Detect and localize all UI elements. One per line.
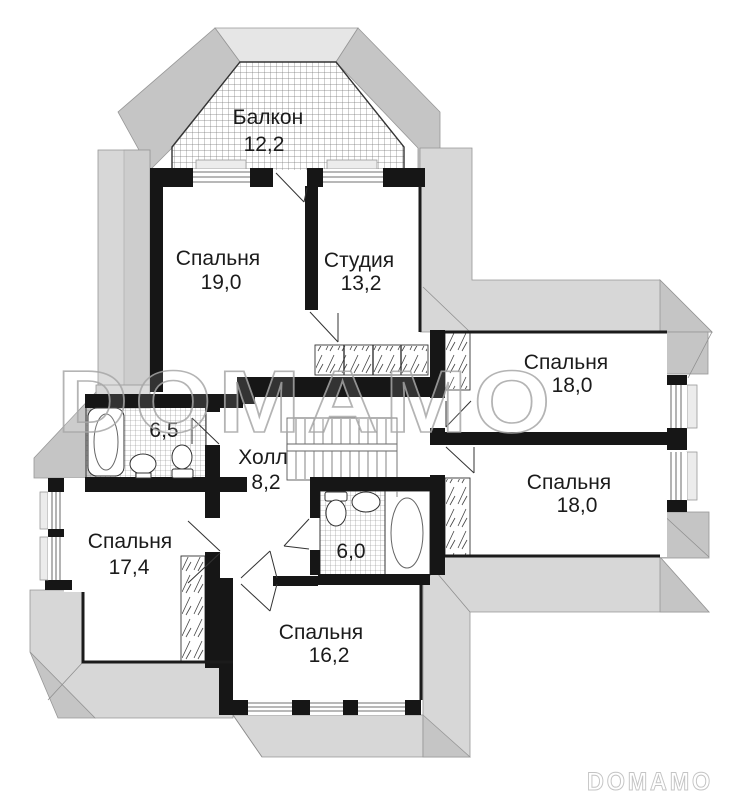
wall-segment	[667, 500, 687, 512]
room-label-studio: Студия	[324, 249, 394, 272]
watermark-footer: DOMAMO	[587, 768, 713, 796]
wall-segment	[307, 168, 323, 187]
window-sill	[687, 385, 697, 428]
window-bedroom-18-lower	[667, 452, 687, 500]
wall-segment	[85, 477, 247, 492]
wall-segment	[310, 477, 445, 491]
room-label-bedroom-17: Спальня	[88, 530, 172, 553]
window-sill	[196, 160, 246, 169]
floor-plan-page: Балкон 12,2 Спальня 19,0 Студия 13,2 Спа…	[0, 0, 736, 800]
wall-segment	[310, 550, 320, 575]
room-area-bedroom-18-upper: 18,0	[552, 374, 593, 397]
room-area-bedroom-16: 16,2	[309, 644, 350, 667]
wall-segment	[310, 491, 320, 518]
window-sill	[40, 537, 48, 580]
wardrobe-hatch	[182, 557, 204, 661]
window-sill	[687, 452, 697, 500]
room-label-bedroom-16: Спальня	[279, 621, 363, 644]
watermark-center: DOMAMO	[57, 352, 557, 451]
room-area-studio: 13,2	[341, 272, 382, 295]
room-label-bedroom-19: Спальня	[176, 247, 260, 270]
wall-segment	[250, 168, 273, 187]
wall-segment	[48, 529, 64, 537]
wall-segment	[305, 186, 318, 310]
sink-65	[130, 454, 156, 474]
room-area-balcony: 12,2	[244, 133, 285, 156]
floor-plan-image: Балкон 12,2 Спальня 19,0 Студия 13,2 Спа…	[0, 0, 736, 800]
wall-segment	[219, 700, 248, 715]
wall-segment	[205, 492, 220, 518]
window-sill	[327, 160, 377, 169]
wall-segment	[667, 375, 687, 385]
wall-segment	[343, 700, 358, 715]
wall-segment	[48, 478, 64, 492]
roof-right-lower-fold	[660, 557, 709, 612]
wall-segment	[383, 168, 425, 187]
wall-segment	[273, 576, 318, 586]
window-bedroom-16-center	[310, 700, 343, 715]
room-area-bedroom-17: 17,4	[109, 556, 150, 579]
wall-segment	[667, 428, 687, 450]
window-bedroom-18-upper	[667, 385, 687, 428]
bathtub-60-basin	[391, 498, 423, 568]
wall-segment	[430, 475, 445, 575]
wardrobe-hatch	[446, 479, 469, 555]
roof-right-upper-fold	[660, 280, 712, 332]
wall-segment	[292, 700, 310, 715]
room-label-bedroom-18-lower: Спальня	[527, 471, 611, 494]
toilet-60-bowl	[326, 500, 346, 526]
sink-60	[352, 492, 380, 512]
room-area-hall: 8,2	[251, 471, 280, 494]
wall-segment	[405, 700, 421, 715]
wall-segment	[318, 574, 430, 585]
window-sill	[40, 492, 48, 529]
room-area-bedroom-18-lower: 18,0	[557, 494, 598, 517]
toilet-65-tank	[172, 469, 193, 478]
window-bedroom-16-right	[358, 700, 405, 715]
window-bedroom-16-left	[248, 700, 292, 715]
wall-segment	[205, 552, 220, 668]
room-area-bedroom-19: 19,0	[201, 271, 242, 294]
sink-65-pedestal	[136, 473, 151, 478]
room-label-balcony: Балкон	[233, 106, 303, 129]
wall-segment	[45, 580, 72, 590]
wall-segment	[219, 578, 233, 715]
room-area-bathroom-60: 6,0	[336, 540, 365, 563]
roof-bottom-center-band	[233, 715, 423, 757]
